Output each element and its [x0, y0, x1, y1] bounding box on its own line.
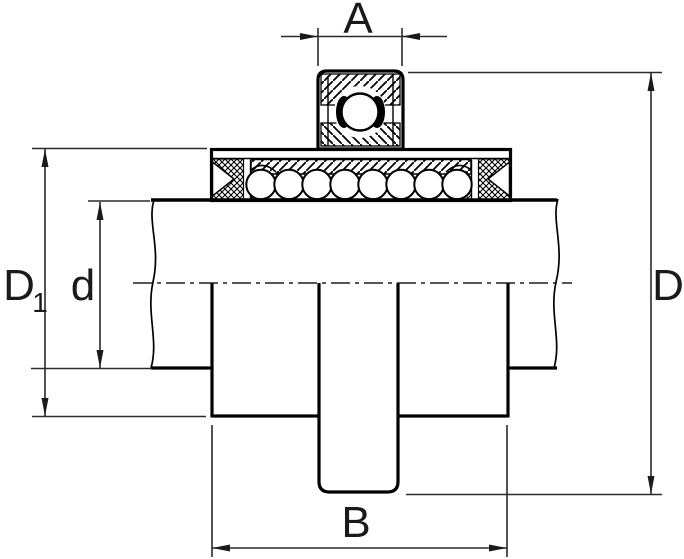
ball: [442, 170, 471, 199]
dim-a-arrow-right: [402, 33, 420, 40]
dim-a-arrow-left: [300, 33, 318, 40]
dim-d1-arrow-bottom: [42, 398, 49, 416]
dim-b-arrow-right: [489, 545, 507, 552]
top-bearing-ball: [342, 94, 379, 131]
dim-b-arrow-left: [212, 545, 230, 552]
lower-housing: [212, 283, 508, 492]
ball: [274, 170, 303, 199]
ball: [330, 170, 359, 199]
dim-label-d1-sub: 1: [32, 287, 48, 318]
dim-label-d1: D: [3, 261, 35, 310]
shaft-break-line-left: [151, 200, 156, 368]
dim-label-d-shaft: d: [71, 261, 95, 310]
dim-d-arrow-top: [648, 73, 655, 91]
bearing-unit-drawing: A D D 1 d B: [0, 0, 684, 559]
top-bearing: [318, 71, 403, 149]
drawing-canvas: A D D 1 d B: [0, 0, 684, 559]
dim-label-b: B: [341, 498, 370, 547]
dim-label-d-outer: D: [652, 261, 684, 310]
dim-d-arrow-bottom: [648, 476, 655, 494]
housing-section: [212, 150, 511, 201]
ball: [414, 170, 443, 199]
lower-housing-stem: [319, 283, 398, 492]
ball: [386, 170, 415, 199]
ball: [358, 170, 387, 199]
dim-dshaft-arrow-bottom: [97, 350, 104, 368]
dim-dshaft-arrow-top: [97, 202, 104, 220]
ball: [302, 170, 331, 199]
dim-label-a: A: [343, 0, 373, 43]
ball: [246, 170, 275, 199]
dim-d1-arrow-top: [42, 149, 49, 167]
